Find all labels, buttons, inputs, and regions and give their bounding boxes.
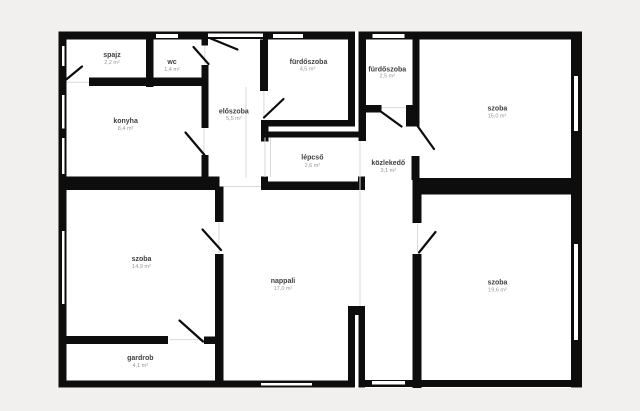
svg-text:2,2 m²: 2,2 m²	[104, 60, 120, 66]
svg-text:spajz: spajz	[103, 52, 121, 59]
svg-text:2,6 m²: 2,6 m²	[305, 163, 321, 169]
svg-text:szoba: szoba	[488, 279, 508, 286]
svg-text:8,4 m²: 8,4 m²	[118, 126, 134, 132]
svg-text:15,0 m²: 15,0 m²	[488, 113, 507, 119]
svg-text:14,9 m²: 14,9 m²	[132, 264, 151, 270]
svg-text:wc: wc	[166, 59, 176, 66]
svg-text:3,1 m²: 3,1 m²	[381, 168, 397, 174]
svg-text:közlekedő: közlekedő	[371, 160, 405, 167]
svg-text:fürdőszoba: fürdőszoba	[290, 59, 328, 66]
svg-text:előszoba: előszoba	[219, 108, 249, 115]
svg-text:5,5 m²: 5,5 m²	[226, 116, 242, 122]
svg-text:1,4 m²: 1,4 m²	[164, 67, 180, 73]
svg-text:4,5 m²: 4,5 m²	[300, 66, 316, 72]
svg-text:gardrob: gardrob	[127, 355, 153, 362]
svg-text:fürdőszoba: fürdőszoba	[368, 66, 406, 73]
svg-text:17,0 m²: 17,0 m²	[274, 286, 293, 292]
svg-text:4,1 m²: 4,1 m²	[133, 363, 149, 369]
svg-text:szoba: szoba	[487, 106, 507, 113]
svg-text:nappali: nappali	[271, 278, 296, 285]
svg-text:szoba: szoba	[132, 256, 152, 263]
svg-text:konyha: konyha	[113, 118, 138, 125]
svg-text:lépcső: lépcső	[301, 154, 323, 161]
svg-text:19,6 m²: 19,6 m²	[488, 287, 507, 293]
svg-text:2,5 m²: 2,5 m²	[380, 74, 396, 80]
